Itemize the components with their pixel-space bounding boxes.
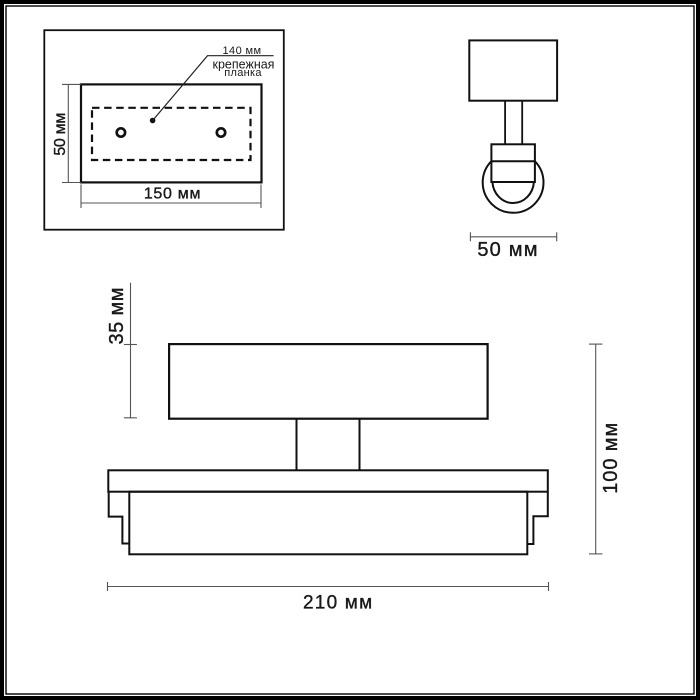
svg-text:140 мм: 140 мм: [223, 45, 262, 57]
svg-text:планка: планка: [224, 67, 262, 79]
svg-text:210 мм: 210 мм: [303, 593, 373, 614]
svg-text:50 мм: 50 мм: [477, 239, 538, 261]
svg-text:100 мм: 100 мм: [600, 422, 622, 494]
svg-text:150 мм: 150 мм: [144, 185, 201, 202]
svg-text:50 мм: 50 мм: [52, 113, 69, 156]
svg-text:35 мм: 35 мм: [106, 287, 128, 344]
